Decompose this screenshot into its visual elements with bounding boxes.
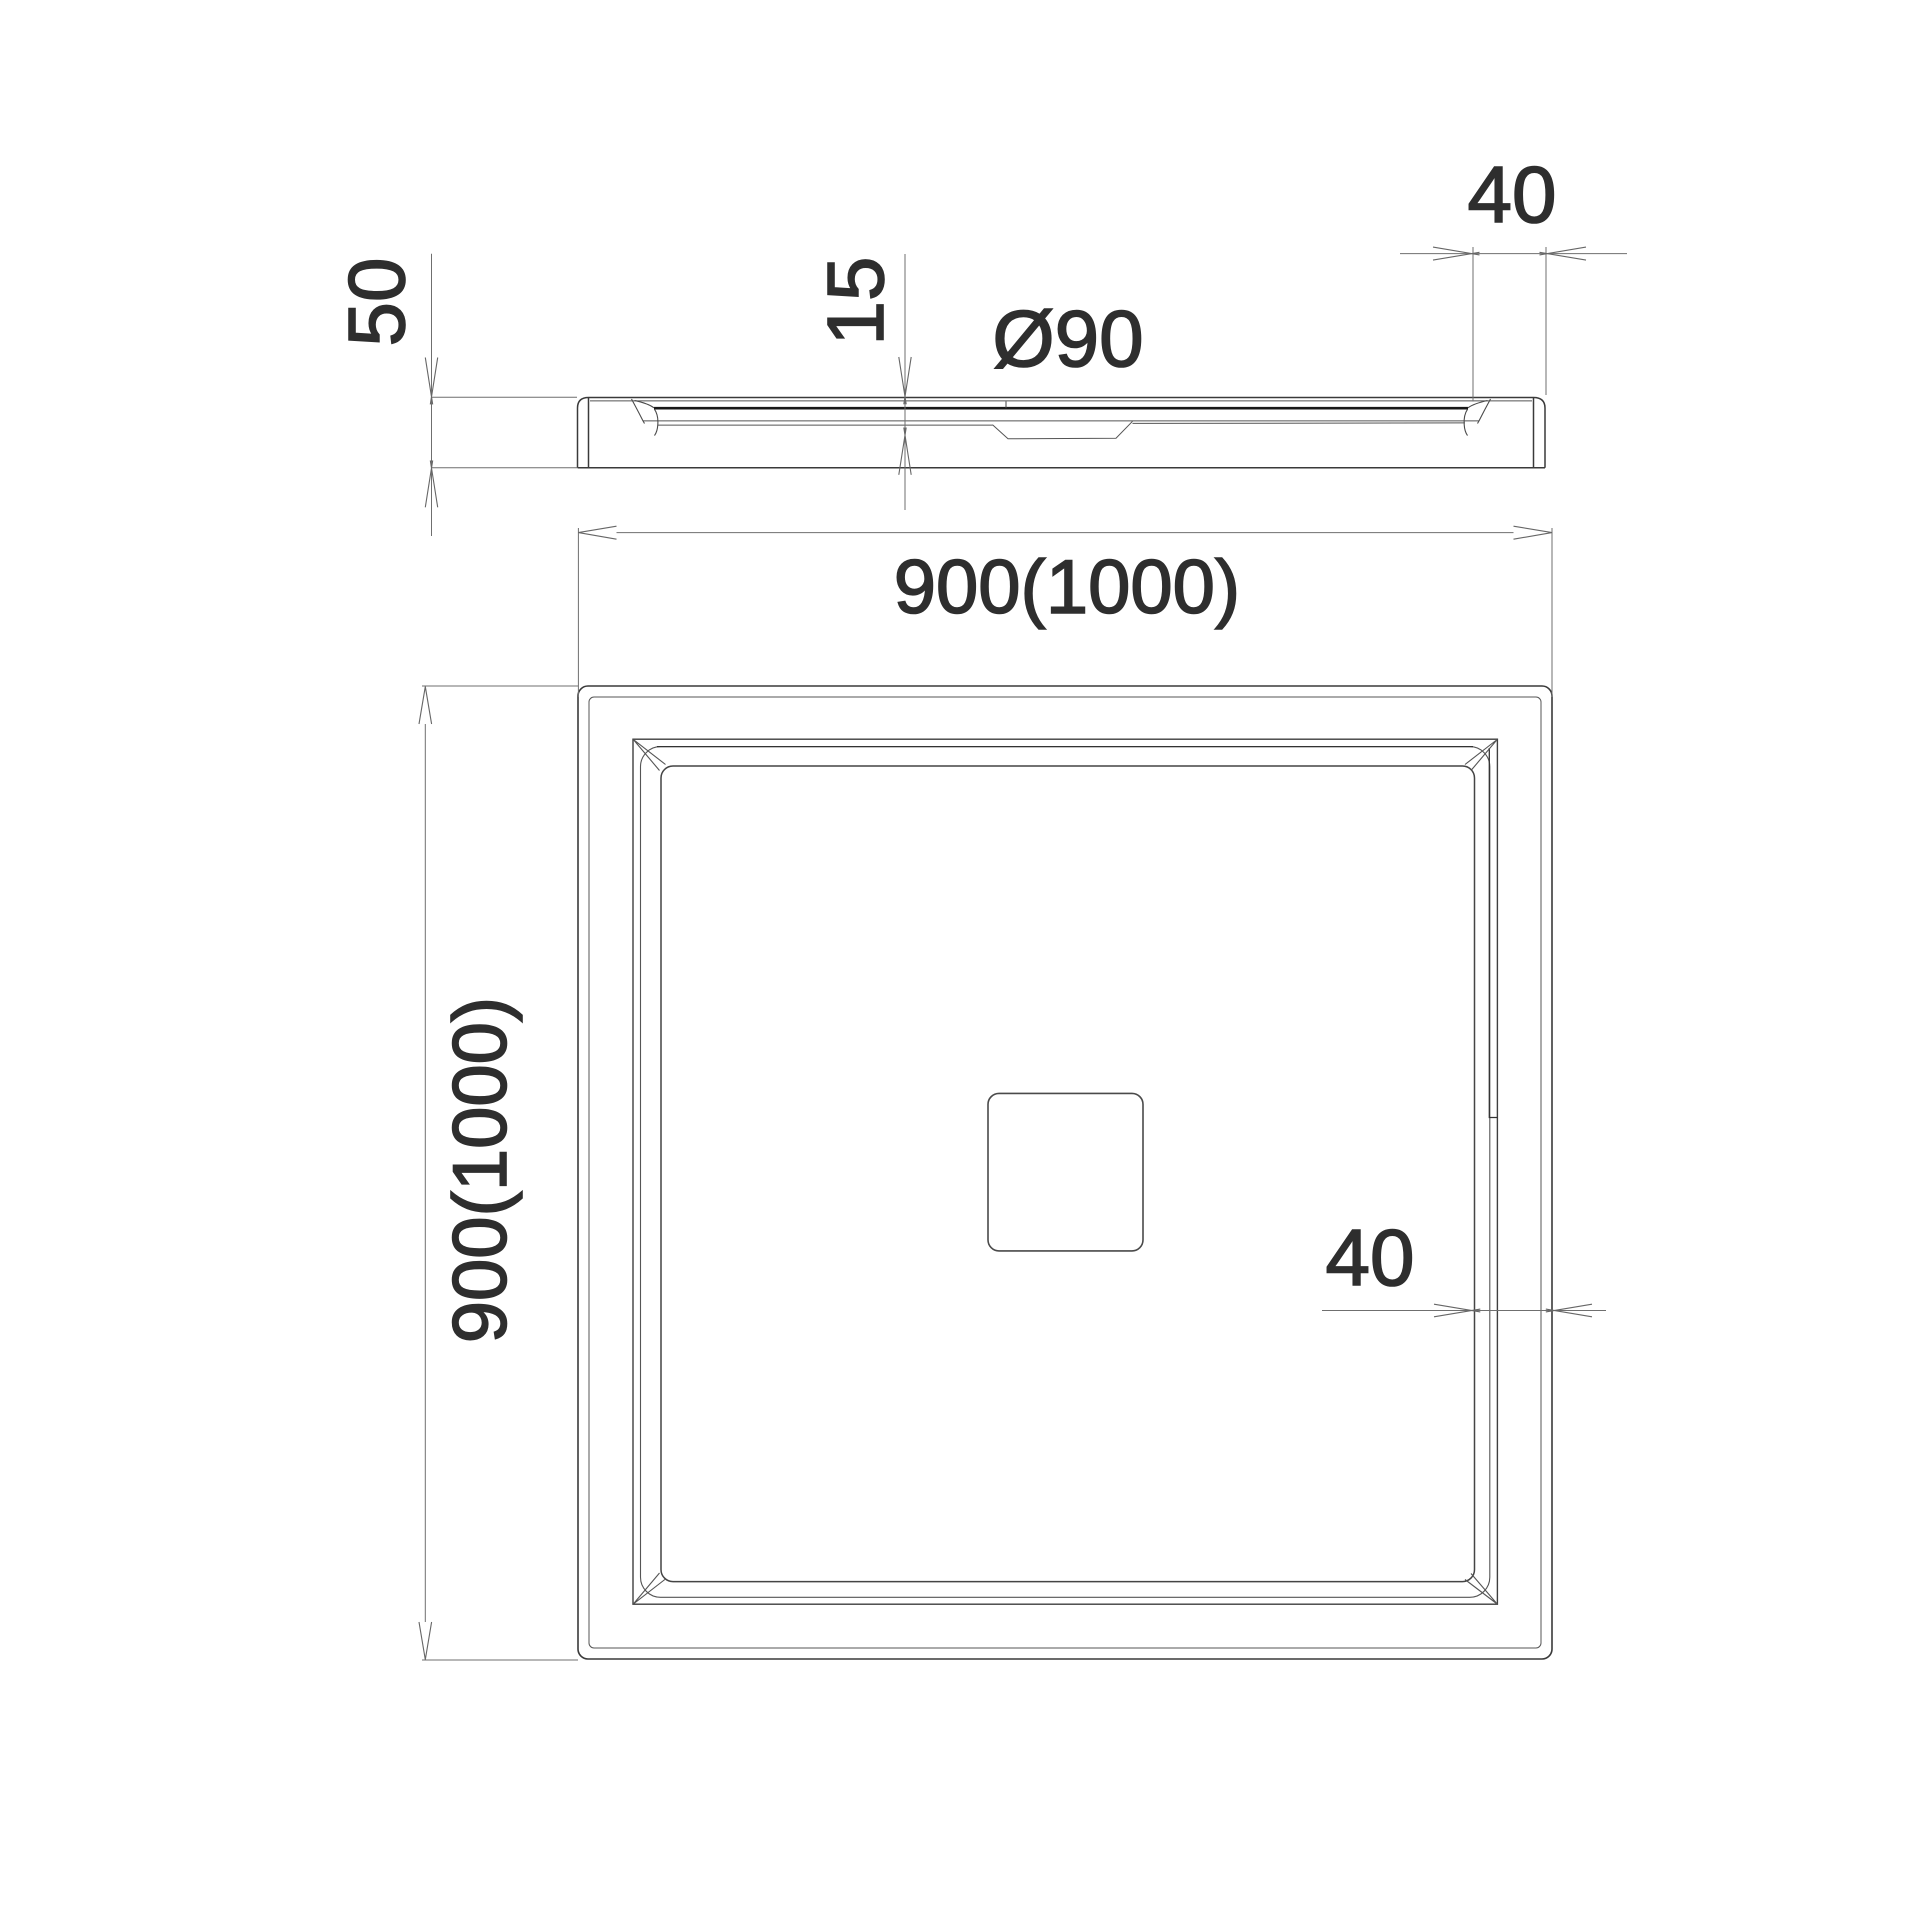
svg-text:Ø90: Ø90	[992, 294, 1143, 383]
svg-text:15: 15	[811, 257, 900, 346]
svg-text:900(1000): 900(1000)	[894, 545, 1241, 630]
svg-text:40: 40	[1326, 1213, 1415, 1302]
svg-text:40: 40	[1468, 150, 1557, 239]
svg-text:900(1000): 900(1000)	[438, 997, 523, 1344]
svg-text:50: 50	[332, 258, 421, 347]
